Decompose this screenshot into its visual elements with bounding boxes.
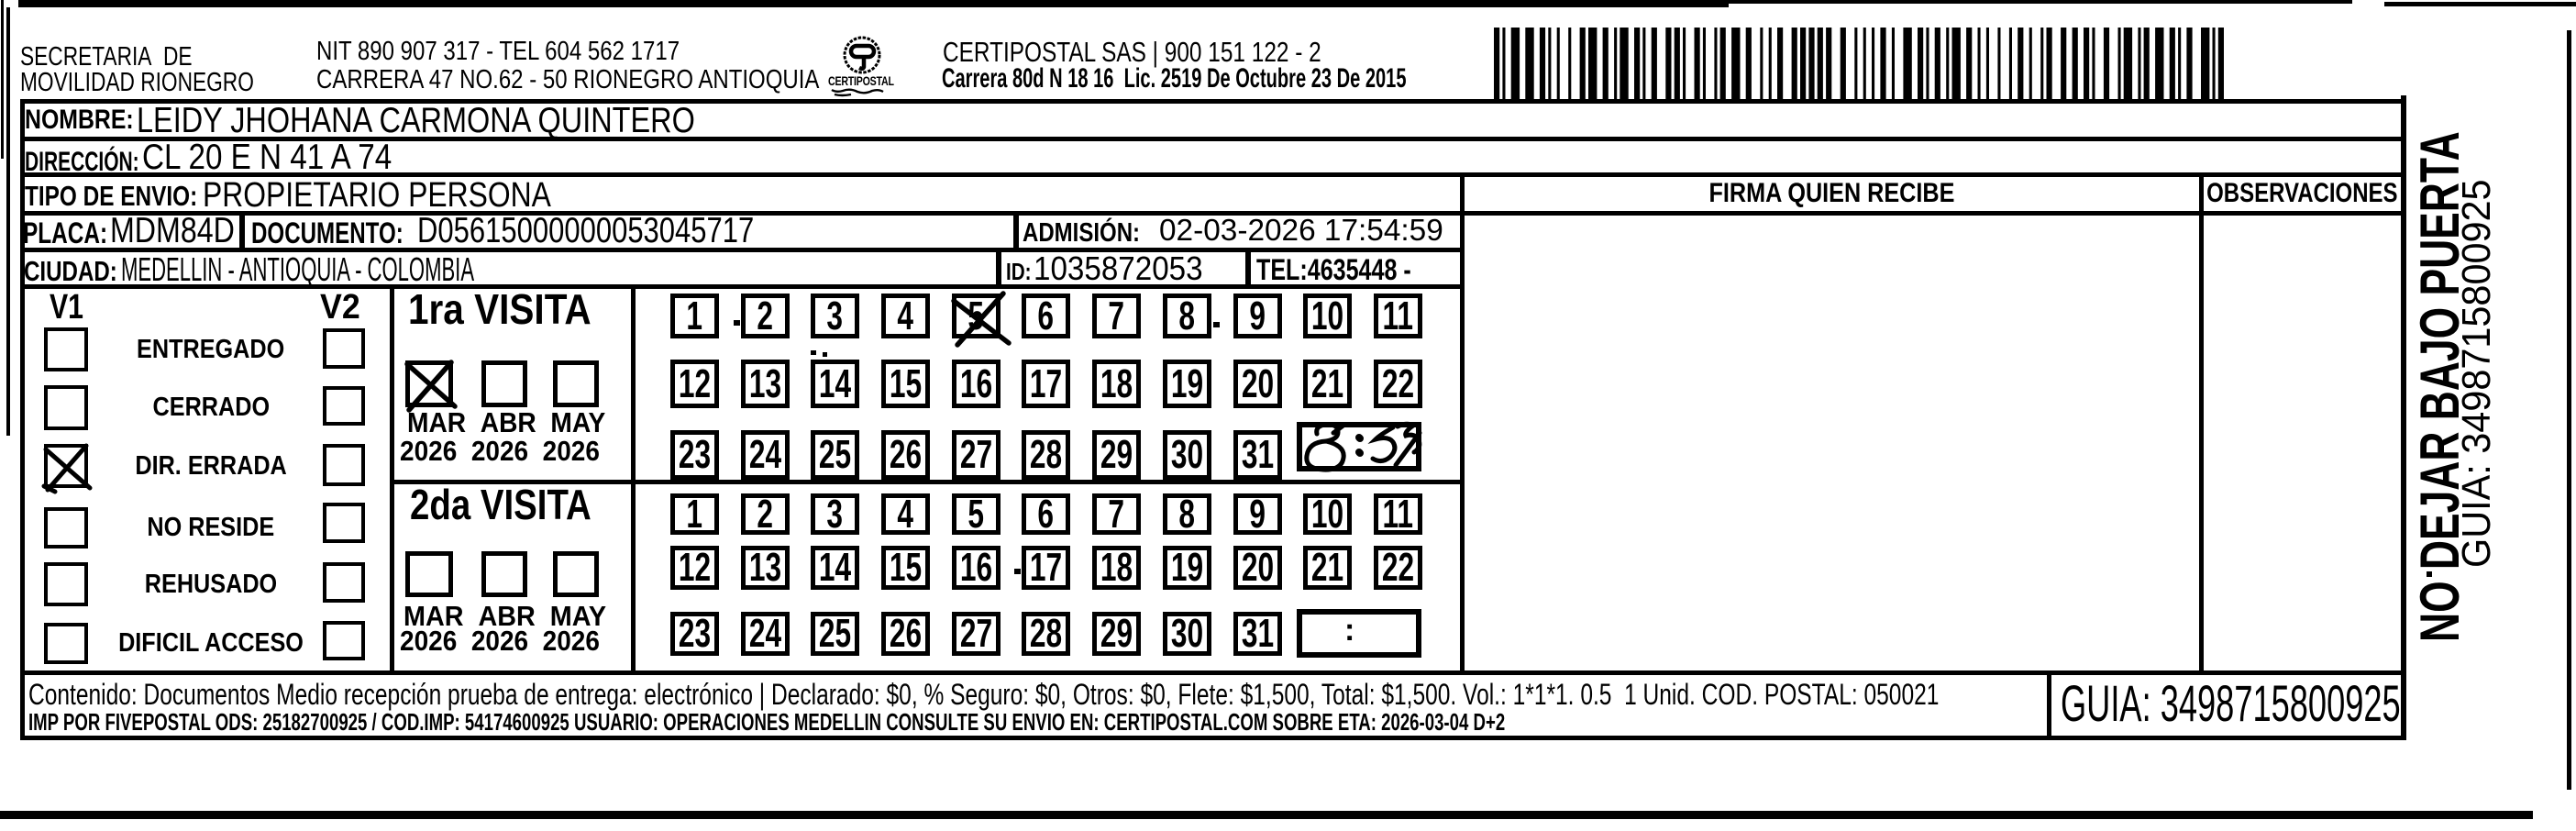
svg-text:CERTIPOSTAL: CERTIPOSTAL xyxy=(828,74,894,89)
